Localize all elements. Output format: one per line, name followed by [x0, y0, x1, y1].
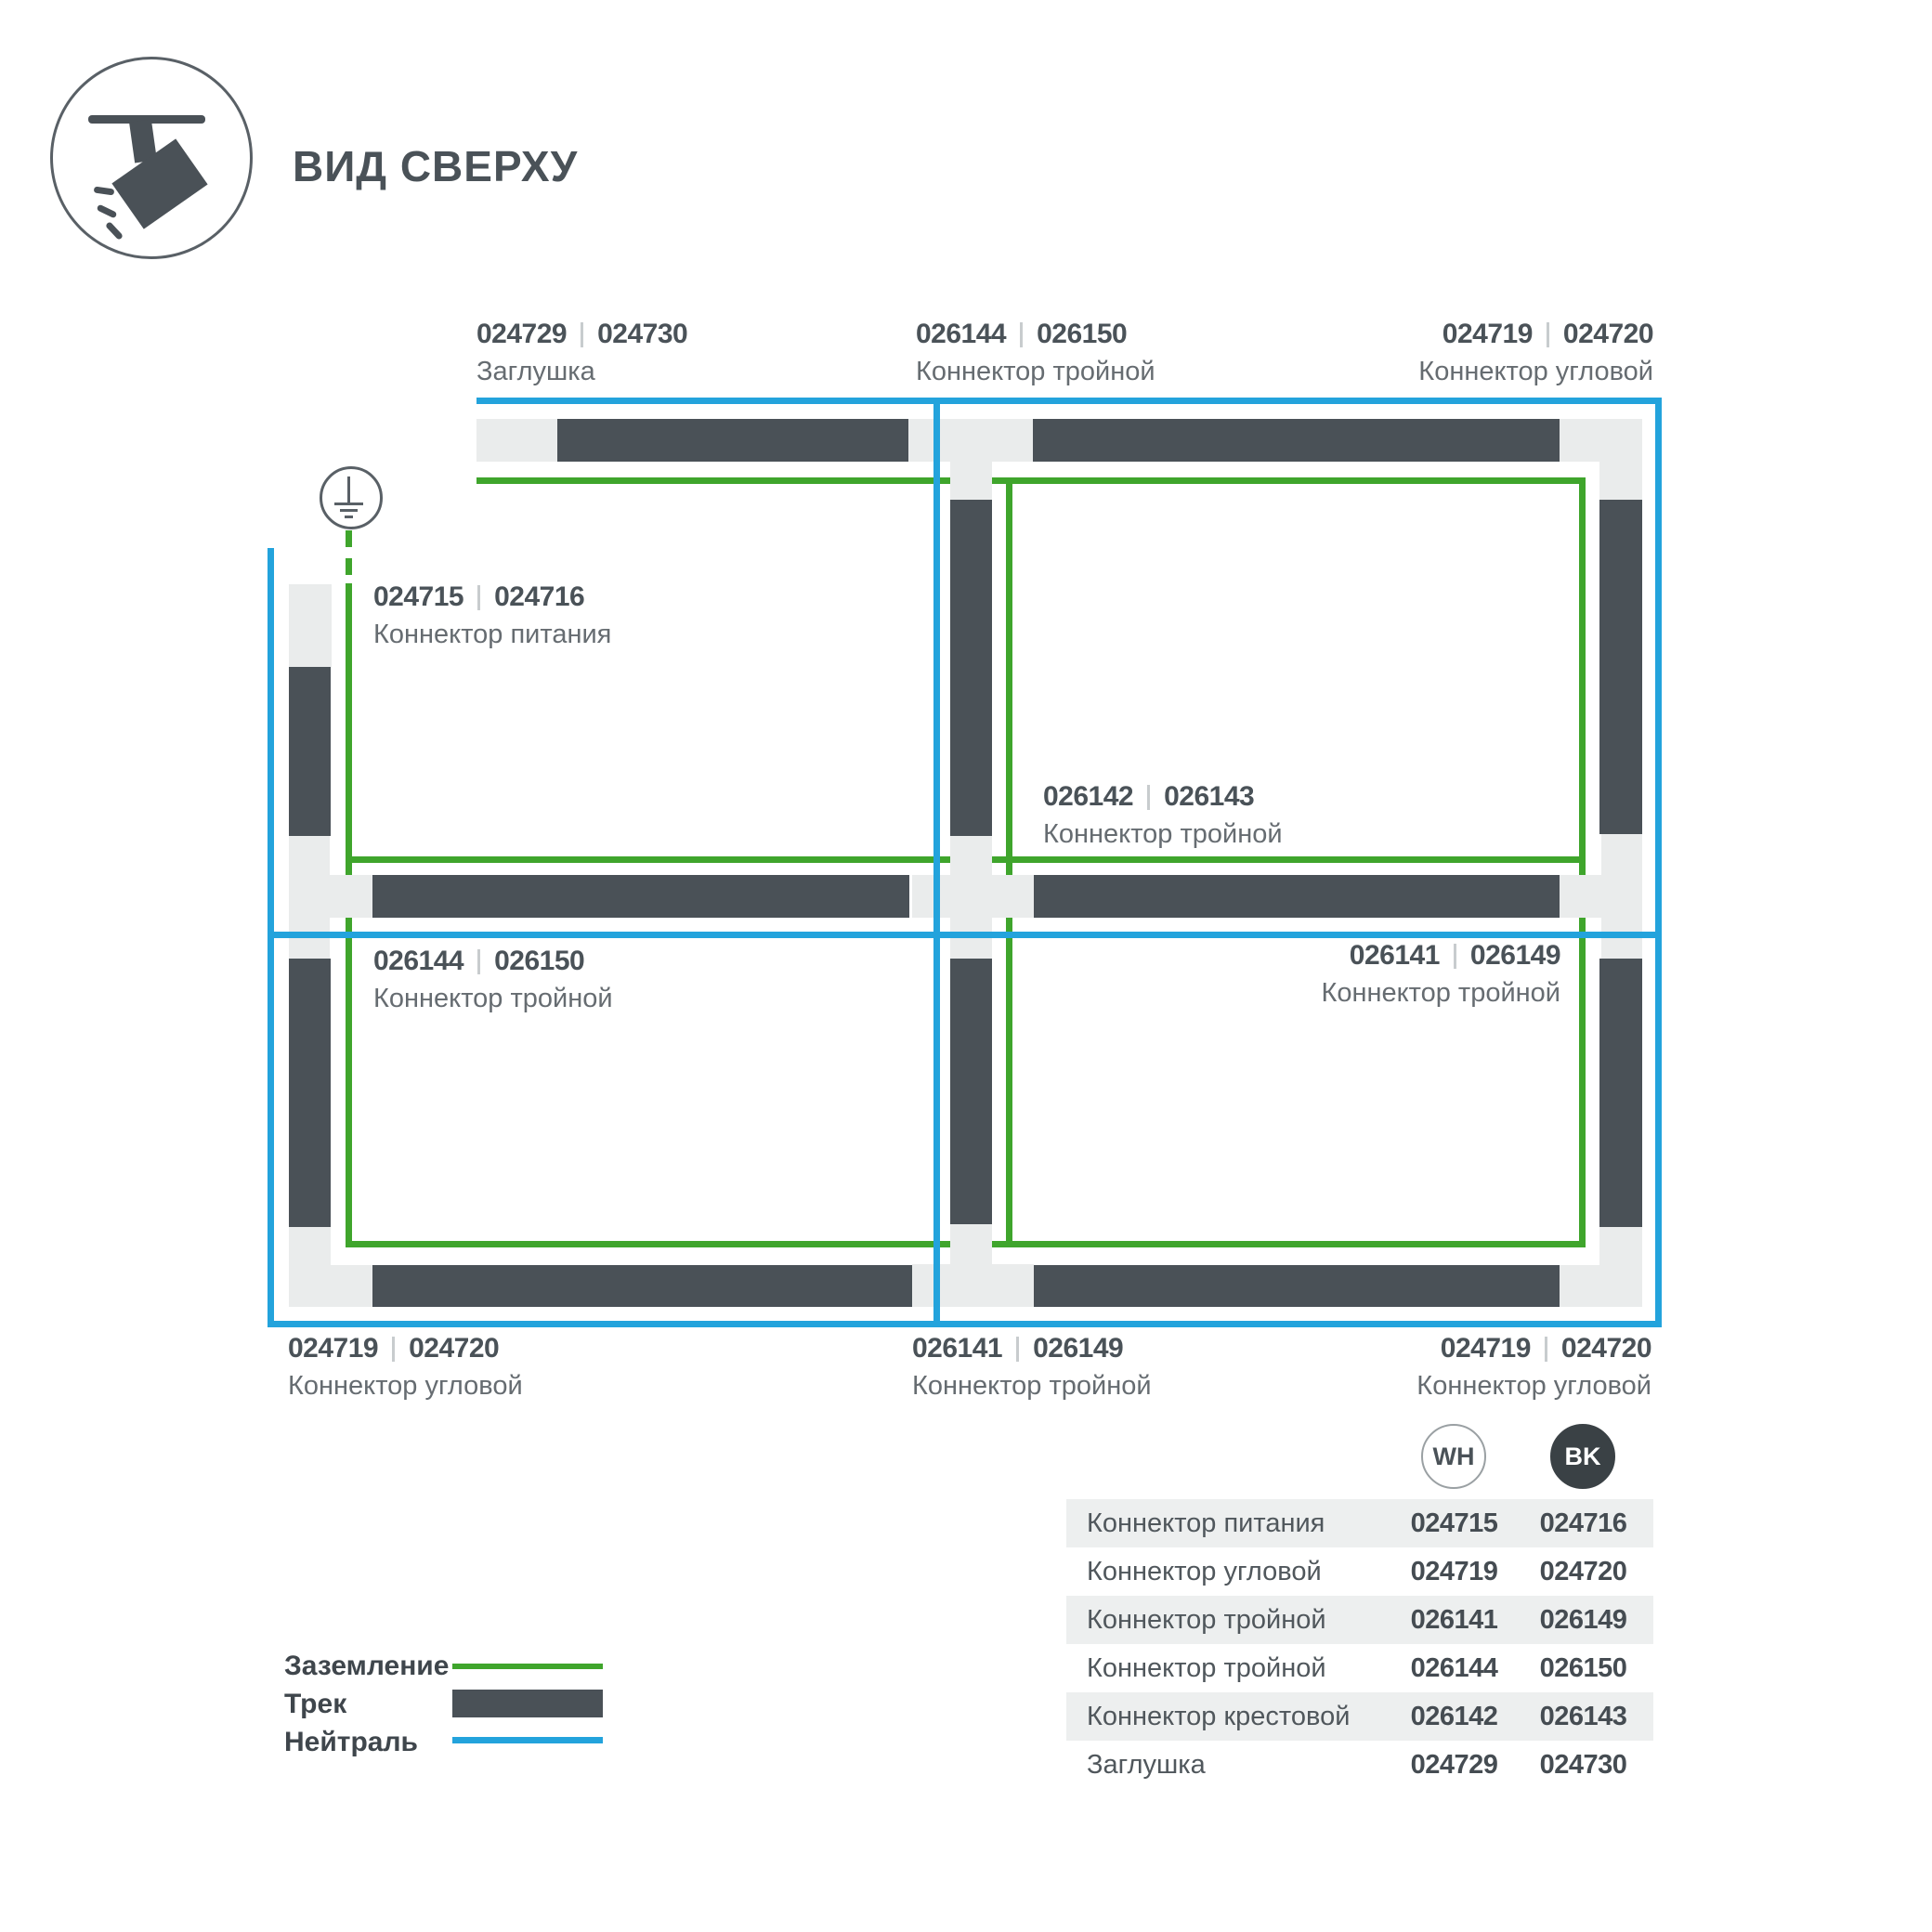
table-cell-name: Заглушка: [1066, 1750, 1390, 1781]
part-code: 024719: [288, 1335, 378, 1363]
table-cell-wh: 024719: [1390, 1557, 1519, 1587]
label-power-connector: 024715024716 Коннектор питания: [373, 583, 611, 650]
table-row: Коннектор тройной 026141 026149: [1066, 1596, 1653, 1644]
part-code: 026149: [1470, 942, 1560, 970]
table-cell-bk: 024716: [1519, 1508, 1648, 1539]
neutral-line-top: [476, 398, 1662, 404]
table-cell-bk: 026150: [1519, 1653, 1648, 1684]
ground-line-right: [1579, 477, 1586, 1247]
table-cell-wh: 026144: [1390, 1653, 1519, 1684]
color-badge-black: BK: [1550, 1424, 1615, 1489]
connector-corner-bottomleft: [289, 1265, 372, 1307]
earth-ground-icon-bar: [334, 503, 363, 505]
connector-tee-top: [908, 419, 1033, 462]
connector-corner-bottomright: [1560, 1265, 1642, 1307]
part-code: 026141: [912, 1335, 1002, 1363]
part-code: 026143: [1164, 783, 1254, 811]
ground-feed-dashed-line: [346, 530, 352, 583]
ground-line-center: [1006, 477, 1012, 1247]
light-ray-icon: [94, 187, 115, 196]
color-badge-white: WH: [1421, 1424, 1486, 1489]
part-code: 024715: [373, 583, 463, 611]
part-code: 024720: [409, 1335, 499, 1363]
table-cell-name: Коннектор тройной: [1066, 1605, 1390, 1636]
track-segment: [1033, 419, 1560, 462]
track-segment: [1034, 875, 1560, 918]
light-ray-icon: [105, 221, 124, 241]
part-code: 024720: [1561, 1335, 1651, 1363]
track-segment: [1599, 959, 1642, 1227]
legend-swatch-ground: [452, 1664, 603, 1669]
connector-corner-topright: [1560, 419, 1642, 462]
label-tee-right: 026141026149 Коннектор тройной: [1321, 942, 1560, 1009]
part-code: 024719: [1442, 320, 1533, 348]
track-segment: [1034, 1265, 1560, 1307]
part-code: 026149: [1033, 1335, 1123, 1363]
part-code: 024720: [1563, 320, 1653, 348]
table-cell-bk: 024720: [1519, 1557, 1648, 1587]
table-cell-wh: 024715: [1390, 1508, 1519, 1539]
connector-tee-left-stem: [330, 875, 372, 918]
track-segment: [950, 500, 992, 836]
legend-swatch-neutral: [452, 1737, 603, 1743]
label-corner-bottomright: 024719024720 Коннектор угловой: [1416, 1335, 1651, 1402]
track-light-icon-body: [111, 138, 207, 228]
part-name: Коннектор тройной: [912, 1372, 1152, 1402]
label-cross-center: 026142026143 Коннектор тройной: [1043, 783, 1283, 850]
connector-corner-bottomleft-arm: [289, 1227, 331, 1265]
part-name: Коннектор тройной: [1321, 979, 1560, 1009]
part-code: 024716: [494, 583, 584, 611]
divider: [1020, 322, 1023, 347]
neutral-line-center: [933, 398, 940, 1327]
track-segment: [372, 1265, 912, 1307]
divider: [1454, 944, 1456, 969]
neutral-line-right: [1655, 398, 1662, 1327]
page-title: ВИД СВЕРХУ: [293, 141, 578, 191]
divider: [581, 322, 583, 347]
page: ВИД СВЕРХУ 024: [0, 0, 1932, 1932]
connector-endcap-top: [476, 419, 557, 462]
table-row: Коннектор угловой 024719 024720: [1066, 1547, 1653, 1596]
earth-ground-icon: [320, 466, 383, 529]
connector-tee-top-stem: [950, 462, 992, 500]
part-code: 026141: [1350, 942, 1440, 970]
divider: [1016, 1337, 1019, 1362]
label-tee-left: 026144026150 Коннектор тройной: [373, 947, 613, 1014]
part-code: 024729: [476, 320, 567, 348]
label-endcap-top: 024729024730 Заглушка: [476, 320, 687, 387]
part-code: 026150: [494, 947, 584, 975]
part-name: Заглушка: [476, 358, 687, 387]
connector-tee-right: [1601, 834, 1642, 959]
table-cell-bk: 026143: [1519, 1702, 1648, 1732]
connector-tee-bottom-stem: [950, 1224, 992, 1264]
table-row: Коннектор крестовой 026142 026143: [1066, 1692, 1653, 1741]
divider: [1147, 785, 1150, 810]
part-name: Коннектор тройной: [916, 358, 1155, 387]
track-segment: [289, 667, 331, 836]
table-row: Коннектор питания 024715 024716: [1066, 1499, 1653, 1547]
table-cell-bk: 024730: [1519, 1750, 1648, 1781]
badge-label: BK: [1565, 1442, 1601, 1471]
divider: [1547, 322, 1549, 347]
part-name: Коннектор угловой: [288, 1372, 523, 1402]
part-code: 026142: [1043, 783, 1133, 811]
neutral-line-middle: [268, 932, 1662, 938]
table-cell-wh: 024729: [1390, 1750, 1519, 1781]
part-name: Коннектор угловой: [1418, 358, 1653, 387]
label-corner-bottomleft: 024719024720 Коннектор угловой: [288, 1335, 523, 1402]
divider: [477, 585, 480, 610]
part-code: 026144: [916, 320, 1006, 348]
track-light-icon: [50, 57, 253, 259]
divider: [392, 1337, 395, 1362]
part-name: Коннектор угловой: [1416, 1372, 1651, 1402]
badge-label: WH: [1433, 1442, 1475, 1471]
part-name: Коннектор тройной: [373, 985, 613, 1014]
track-segment: [950, 959, 992, 1224]
connector-corner-topright-arm: [1599, 462, 1642, 500]
part-code: 026150: [1037, 320, 1127, 348]
part-name: Коннектор питания: [373, 620, 611, 650]
table-cell-name: Коннектор крестовой: [1066, 1702, 1390, 1732]
label-corner-topright: 024719024720 Коннектор угловой: [1418, 320, 1653, 387]
table-cell-name: Коннектор тройной: [1066, 1653, 1390, 1684]
light-ray-icon: [97, 204, 118, 219]
track-segment: [289, 959, 331, 1227]
neutral-line-left: [268, 548, 274, 1327]
part-name: Коннектор тройной: [1043, 820, 1283, 850]
connector-tee-right-stem: [1560, 875, 1602, 918]
divider: [477, 949, 480, 974]
part-code: 026144: [373, 947, 463, 975]
label-tee-bottom: 026141026149 Коннектор тройной: [912, 1335, 1152, 1402]
part-code: 024730: [597, 320, 687, 348]
track-segment: [557, 419, 908, 462]
legend-label-ground: Заземление: [284, 1652, 449, 1680]
earth-ground-icon-stem: [347, 476, 350, 503]
legend-swatch-track: [452, 1690, 603, 1717]
table-cell-wh: 026142: [1390, 1702, 1519, 1732]
earth-ground-icon-bar: [340, 509, 358, 512]
track-segment: [372, 875, 909, 918]
table-cell-name: Коннектор угловой: [1066, 1557, 1390, 1587]
divider: [1545, 1337, 1547, 1362]
table-cell-wh: 026141: [1390, 1605, 1519, 1636]
table-row: Заглушка 024729 024730: [1066, 1741, 1653, 1789]
legend-label-track: Трек: [284, 1690, 346, 1718]
neutral-line-bottom: [268, 1321, 1662, 1327]
table-cell-name: Коннектор питания: [1066, 1508, 1390, 1539]
part-code: 024719: [1441, 1335, 1531, 1363]
parts-table: Коннектор питания 024715 024716 Коннекто…: [1066, 1499, 1653, 1789]
connector-tee-left: [289, 836, 330, 959]
connector-cross-center-horizontal: [912, 875, 1034, 918]
connector-power-left: [289, 584, 332, 667]
table-row: Коннектор тройной 026144 026150: [1066, 1644, 1653, 1692]
label-tee-top: 026144026150 Коннектор тройной: [916, 320, 1155, 387]
connector-tee-bottom: [912, 1264, 1034, 1307]
ground-line-top: [476, 477, 1586, 484]
track-segment: [1599, 500, 1642, 834]
earth-ground-icon-bar: [345, 516, 353, 518]
legend-label-neutral: Нейтраль: [284, 1729, 418, 1756]
connector-corner-bottomright-arm: [1599, 1227, 1642, 1265]
table-cell-bk: 026149: [1519, 1605, 1648, 1636]
